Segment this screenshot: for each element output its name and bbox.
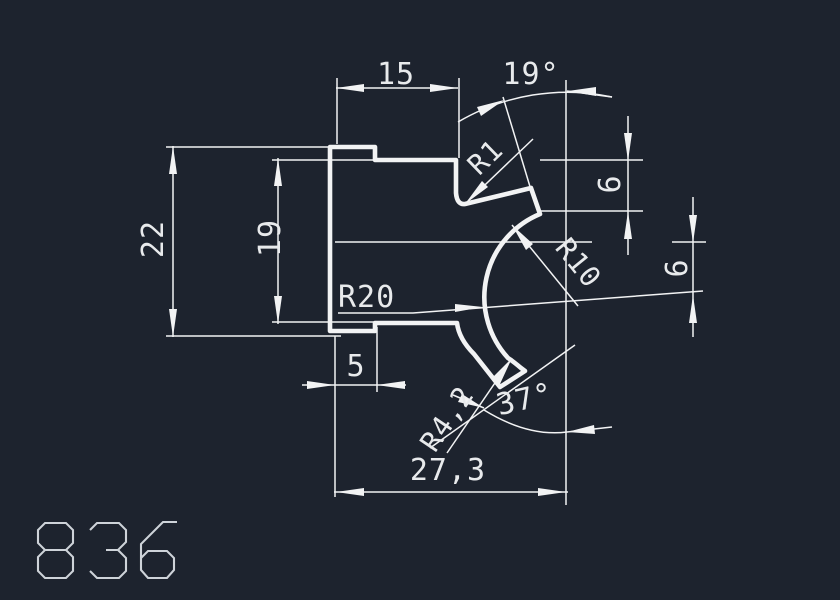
arrow-15-right: [430, 84, 458, 92]
ext-19deg-diagonal: [503, 97, 531, 190]
part-number-digit-3: [90, 523, 126, 578]
cad-drawing-canvas: 15 19° R1 22 19 R20 R10 6 6 5 R4,2 37° 2…: [0, 0, 840, 600]
dim-notch-radius-label: R1: [461, 133, 510, 182]
arrow-r10: [512, 225, 533, 250]
part-number-digit-6: [141, 522, 177, 578]
dim-lower-offset-label: 6: [660, 258, 695, 277]
arrow-19deg-left: [477, 100, 504, 116]
arrow-19-top: [274, 158, 282, 186]
arrow-19-bottom: [274, 296, 282, 324]
technical-drawing: 15 19° R1 22 19 R20 R10 6 6 5 R4,2 37° 2…: [0, 0, 840, 600]
arrow-6b-bottom: [689, 295, 697, 323]
part-number-digit-8: [38, 523, 73, 578]
arrow-19deg-right: [568, 87, 596, 96]
dim-inner-height-label: 19: [253, 219, 288, 257]
dim-top-angle-label: 19°: [502, 57, 559, 92]
dim-step-width-label: 5: [346, 349, 365, 384]
arrow-6b-top: [689, 215, 697, 243]
dim-left-height-label: 22: [136, 220, 171, 258]
arrow-5-left: [307, 381, 335, 389]
arrow-27-3-left: [336, 488, 364, 496]
arrow-5-right: [377, 381, 405, 389]
arrow-22-bottom: [169, 309, 177, 337]
dimension-labels: 15 19° R1 22 19 R20 R10 6 6 5 R4,2 37° 2…: [136, 57, 695, 488]
dim-big-radius-label: R20: [338, 280, 395, 315]
dim-arc-radius-label: R10: [549, 232, 608, 294]
dim-top-width-label: 15: [377, 57, 415, 92]
arrow-6a-top: [624, 133, 632, 161]
arrow-15-left: [336, 84, 364, 92]
arrow-37deg-right: [567, 425, 595, 434]
dim-upper-offset-label: 6: [593, 174, 628, 193]
arrow-27-3-right: [538, 488, 566, 496]
part-number: 836: [38, 522, 177, 598]
arrow-22-top: [169, 146, 177, 174]
dim-total-width-label: 27,3: [410, 453, 486, 488]
arrow-6a-bottom: [624, 211, 632, 239]
